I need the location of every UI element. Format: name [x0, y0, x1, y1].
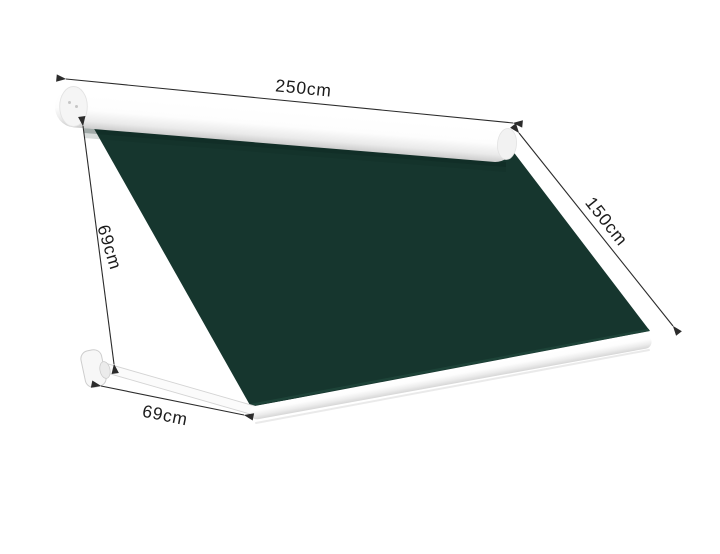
end-cap-screw-icon: [68, 101, 71, 104]
diagram-canvas: 250cm 150cm 69cm 69cm: [0, 0, 720, 554]
awning-dimension-diagram: 250cm 150cm 69cm 69cm: [0, 0, 720, 554]
end-cap-screw-icon: [75, 105, 78, 108]
tube-end-cap-left: [60, 87, 88, 127]
